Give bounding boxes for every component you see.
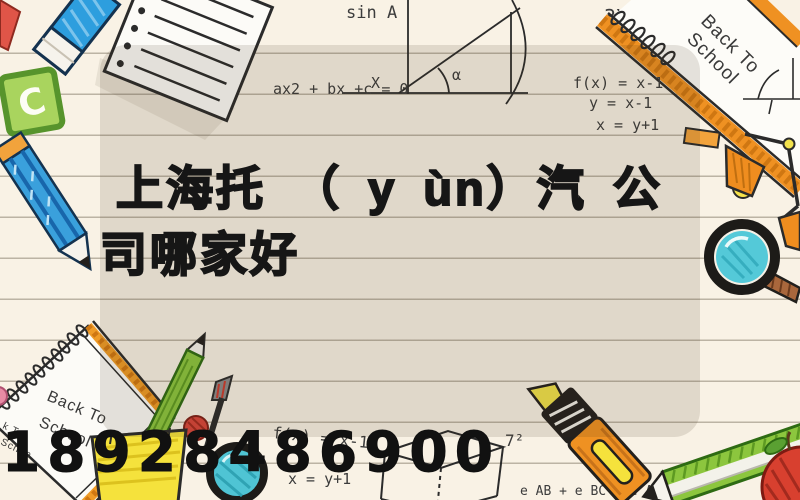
page-title: 上海托 （ y ùn）汽 公 司哪家好 (100, 156, 740, 288)
letter-tile-icon: C (0, 69, 63, 135)
red-pencil-corner-icon (0, 0, 20, 50)
poster: C sin A X α (0, 0, 800, 500)
title-line-1: 上海托 （ y ùn）汽 公 (100, 156, 740, 222)
blue-pencil-icon (0, 133, 104, 278)
phone-number: 18928486900 (2, 420, 500, 484)
title-line-2: 司哪家好 (100, 222, 740, 288)
formula-sin: sin A (346, 3, 397, 23)
